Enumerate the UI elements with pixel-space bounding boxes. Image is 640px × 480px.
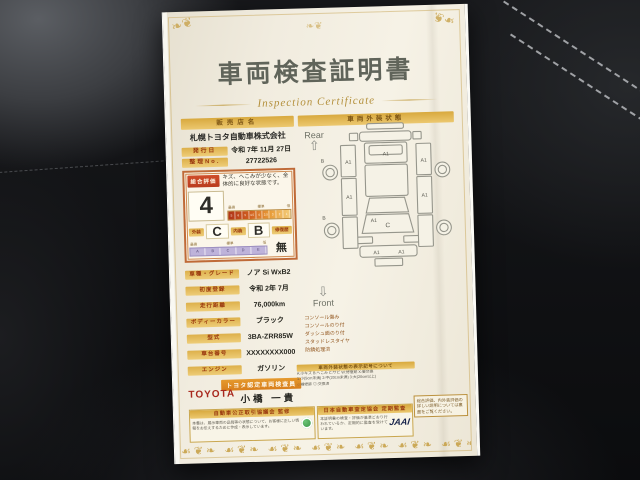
council-text: 本書は、展示車両の品質等の状態について、お客様に正しい情報をお伝えするために作成… [192, 418, 299, 431]
damage-mark: A1 [373, 250, 380, 256]
evaluation-comment: キズ、へこみが少なく、全体的に良好な状態です。 [222, 173, 290, 189]
left-column: 販売店名 札幌トヨタ自動車株式会社 発行日 令和 7年 11月 27日 整理No… [181, 116, 303, 430]
grade-scale-bar: S654.543.5321 [227, 209, 291, 221]
letter-scale-segment: C [221, 247, 236, 254]
letter-scale-segment: D [236, 247, 251, 254]
spec-label: エンジン [188, 365, 242, 376]
car-damage-diagram: A1 A1 A1 A1 A1 C A1 A1 A1 B B [316, 118, 459, 290]
dealer-name: 札幌トヨタ自動車株式会社 [181, 130, 294, 144]
certificate-title: 車両検査証明書 [164, 48, 467, 92]
damage-mark: B [321, 159, 325, 165]
council-seal-icon [301, 417, 312, 428]
ref-no-label: 整理No. [182, 158, 228, 168]
symbol-legend: 車両外装状態の表示記号について A:小キズ B:へこみ C:サビ W:修復跡 X… [297, 361, 416, 388]
front-direction-label: ⇩ Front [312, 286, 334, 309]
issue-date-label: 発行日 [182, 146, 228, 156]
certificate-subtitle: Inspection Certificate [257, 94, 375, 109]
spec-value: ノア Si WxB2 [239, 267, 298, 279]
decorative-line [381, 98, 437, 101]
damage-mark: A1 [383, 151, 390, 157]
grade-scale-segment: 1 [283, 210, 290, 218]
jaai-logo: JAAI [389, 417, 411, 428]
reverse-side-note: 総合評価、内外装評価の詳しい説明については裏面をご覧ください。 [414, 394, 469, 418]
audit-text: 本証明書の検査・評価が基準どおり行われているか、定期的に監査を受けています。 [320, 415, 388, 431]
inspection-certificate-paper: ❧❦ ❧❦ ❧❦ 車両検査証明書 Inspection Certificate … [162, 4, 481, 464]
ref-no-value: 27722526 [228, 157, 295, 166]
appraisal-audit-box: 日本自動車査定協会 定期監査 本証明書の検査・評価が基準どおり行われているか、定… [317, 404, 414, 440]
repair-history-value: 無 [270, 239, 292, 256]
spec-label: 型式 [187, 333, 241, 344]
spec-value: ガソリン [242, 363, 301, 375]
spec-value: 3BA-ZRR85W [241, 332, 300, 341]
spec-value: XXXXXXXX000 [241, 348, 300, 357]
letter-scale-segment: E [251, 247, 266, 254]
condition-notes-list: コンソール傷みコンソールのり付ダッシュ面のり付スタッドレスタイヤ防錆処理済 [304, 313, 375, 355]
interior-label: 内装 [230, 227, 245, 235]
letter-scale-segment: A [190, 248, 205, 255]
exterior-label: 外装 [189, 228, 204, 236]
scale-label: 標準 [226, 241, 233, 246]
arrow-down-icon: ⇩ [312, 286, 333, 299]
issue-date-row: 発行日 令和 7年 11月 27日 [182, 144, 295, 157]
repair-history-label: 修復歴 [272, 225, 292, 234]
damage-mark: A1 [422, 193, 429, 199]
letter-scale-segment: B [206, 248, 221, 255]
spec-value: ブラック [240, 315, 299, 327]
spec-label: 走行距離 [186, 301, 240, 312]
ref-no-row: 整理No. 27722526 [182, 156, 295, 168]
damage-mark: A1 [421, 158, 428, 164]
inspector-name: 小橋 一貴 [240, 390, 296, 406]
seat-stitching-line [510, 34, 640, 161]
spec-label: 車台番号 [187, 349, 241, 360]
letter-scale-bar: ABCDE [189, 246, 267, 257]
interior-grade: B [247, 222, 270, 238]
spec-value: 76,000km [240, 300, 299, 309]
fair-trade-council-box: 自動車公正取引協議会 監修 本書は、展示車両の品質等の状態について、お客様に正し… [189, 406, 316, 443]
spec-label: 車種・グレード [185, 269, 239, 280]
inspector-section: トヨタ認定車両検査員 TOYOTA 小橋 一貴 [188, 378, 302, 407]
overall-evaluation-label: 総合評価 [187, 175, 219, 188]
legend-lines: A:小キズ B:へこみ C:サビ W:修復跡 X:要交換1:小(5cm未満) 2… [297, 368, 415, 388]
decorative-line [195, 103, 251, 106]
toyota-logo: TOYOTA [188, 388, 235, 400]
overall-grade-value: 4 [188, 191, 225, 222]
vehicle-specs-table: 車種・グレードノア Si WxB2初度登録令和 2年 7月走行距離76,000k… [185, 264, 301, 379]
issue-date-value: 令和 7年 11月 27日 [227, 144, 294, 156]
spec-label: 初度登録 [185, 285, 239, 296]
condition-note: 防錆処理済 [305, 345, 375, 355]
damage-mark: C [385, 222, 390, 229]
damage-mark: A1 [345, 160, 352, 166]
spec-row: エンジンガソリン [188, 360, 301, 379]
seat-stitching-line [486, 0, 640, 116]
certificate-subtitle-row: Inspection Certificate [195, 93, 437, 112]
spec-value: 令和 2年 7月 [239, 283, 298, 295]
scale-label: 最高 [190, 242, 197, 247]
seat-seam-line [0, 160, 174, 174]
damage-mark: A1 [346, 195, 353, 201]
spec-label: ボディーカラー [186, 317, 240, 328]
damage-mark: A1 [398, 249, 405, 255]
dealer-label: 販売店名 [181, 116, 294, 130]
exterior-grade: C [206, 224, 229, 240]
damage-mark: B [322, 216, 326, 222]
scale-label: 低 [263, 241, 267, 246]
overall-evaluation-box: 総合評価 キズ、へこみが少なく、全体的に良好な状態です。 4 最高標準低 S65… [182, 168, 298, 263]
front-label-text: Front [313, 298, 334, 309]
damage-mark: A1 [371, 218, 378, 224]
top-flourish-icon: ❧❦ [163, 18, 465, 36]
